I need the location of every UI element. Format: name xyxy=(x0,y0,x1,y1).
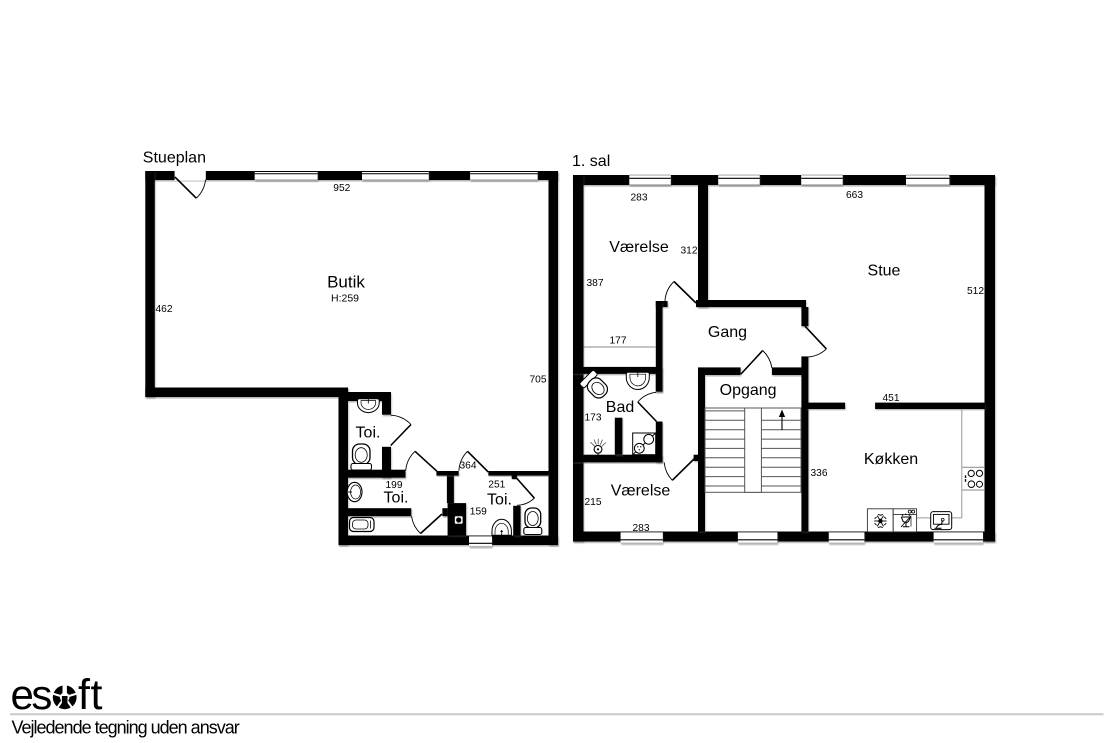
svg-text:Toi.: Toi. xyxy=(487,492,512,509)
svg-text:Værelse: Værelse xyxy=(609,239,669,256)
svg-text:336: 336 xyxy=(811,468,828,479)
svg-text:Opgang: Opgang xyxy=(720,382,777,399)
svg-text:Værelse: Værelse xyxy=(611,483,671,500)
svg-text:es: es xyxy=(11,671,52,718)
svg-text:451: 451 xyxy=(883,393,900,404)
svg-text:462: 462 xyxy=(156,304,173,315)
svg-text:512: 512 xyxy=(967,286,984,297)
svg-text:Toi.: Toi. xyxy=(356,425,381,442)
svg-text:251: 251 xyxy=(488,480,505,491)
svg-text:159: 159 xyxy=(470,507,487,518)
svg-text:Køkken: Køkken xyxy=(864,451,918,468)
svg-text:312: 312 xyxy=(681,246,698,257)
svg-text:1. sal: 1. sal xyxy=(572,153,610,170)
svg-text:ft: ft xyxy=(78,671,103,719)
svg-text:Gang: Gang xyxy=(708,324,747,341)
svg-text:H:259: H:259 xyxy=(331,293,359,305)
svg-text:215: 215 xyxy=(585,497,602,508)
svg-text:387: 387 xyxy=(587,278,604,289)
svg-text:Bad: Bad xyxy=(606,399,634,416)
svg-text:Stueplan: Stueplan xyxy=(143,150,206,167)
svg-text:Toi.: Toi. xyxy=(384,490,409,507)
svg-text:952: 952 xyxy=(333,183,350,194)
svg-text:Butik: Butik xyxy=(327,273,365,292)
svg-text:283: 283 xyxy=(633,523,650,534)
svg-text:173: 173 xyxy=(585,413,602,424)
svg-text:Stue: Stue xyxy=(868,263,901,280)
svg-text:Vejledende tegning uden ansvar: Vejledende tegning uden ansvar xyxy=(12,718,240,738)
svg-text:177: 177 xyxy=(610,336,627,347)
svg-text:705: 705 xyxy=(530,375,547,386)
svg-text:283: 283 xyxy=(631,192,648,203)
svg-text:364: 364 xyxy=(460,460,477,471)
svg-text:663: 663 xyxy=(846,190,863,201)
